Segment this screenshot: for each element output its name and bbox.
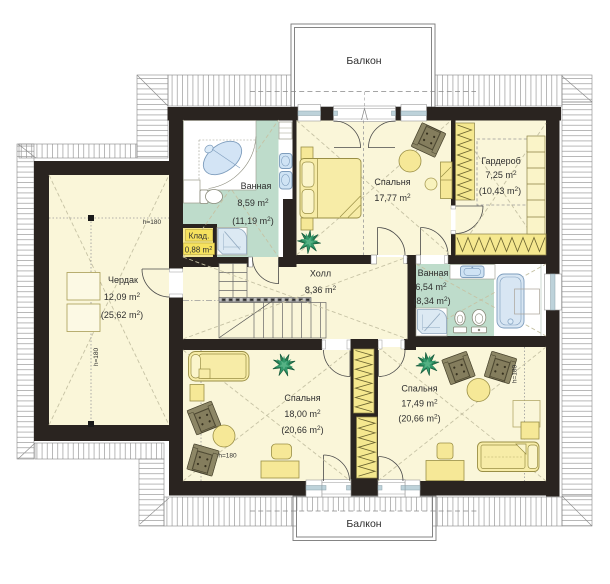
svg-text:Ванная: Ванная	[418, 268, 449, 278]
svg-text:7,25 m2: 7,25 m2	[485, 170, 517, 180]
svg-text:17,49 m2: 17,49 m2	[401, 399, 438, 409]
svg-text:8,36 m2: 8,36 m2	[305, 285, 337, 295]
svg-text:Гардероб: Гардероб	[481, 156, 521, 166]
svg-text:h=180: h=180	[512, 364, 519, 383]
svg-text:Спальня: Спальня	[374, 177, 410, 187]
svg-text:Спальня: Спальня	[401, 384, 437, 394]
svg-text:0,88 m2: 0,88 m2	[185, 246, 213, 255]
svg-text:h=180: h=180	[218, 453, 237, 460]
svg-text:12,09 m2: 12,09 m2	[104, 292, 141, 302]
svg-text:Чердак: Чердак	[108, 275, 138, 285]
svg-text:Клад.: Клад.	[189, 232, 210, 241]
svg-text:Холл: Холл	[310, 269, 331, 279]
svg-text:6,54 m2: 6,54 m2	[415, 282, 447, 292]
svg-text:17,77 m2: 17,77 m2	[374, 193, 411, 203]
svg-text:Балкон: Балкон	[346, 55, 381, 67]
svg-text:8,59 m2: 8,59 m2	[237, 198, 269, 208]
svg-text:h=180: h=180	[143, 219, 162, 226]
svg-text:Балкон: Балкон	[346, 518, 381, 530]
svg-text:Ванная: Ванная	[241, 181, 272, 191]
svg-text:18,00 m2: 18,00 m2	[284, 409, 321, 419]
svg-text:h=180: h=180	[93, 347, 100, 366]
svg-text:Спальня: Спальня	[284, 393, 320, 403]
